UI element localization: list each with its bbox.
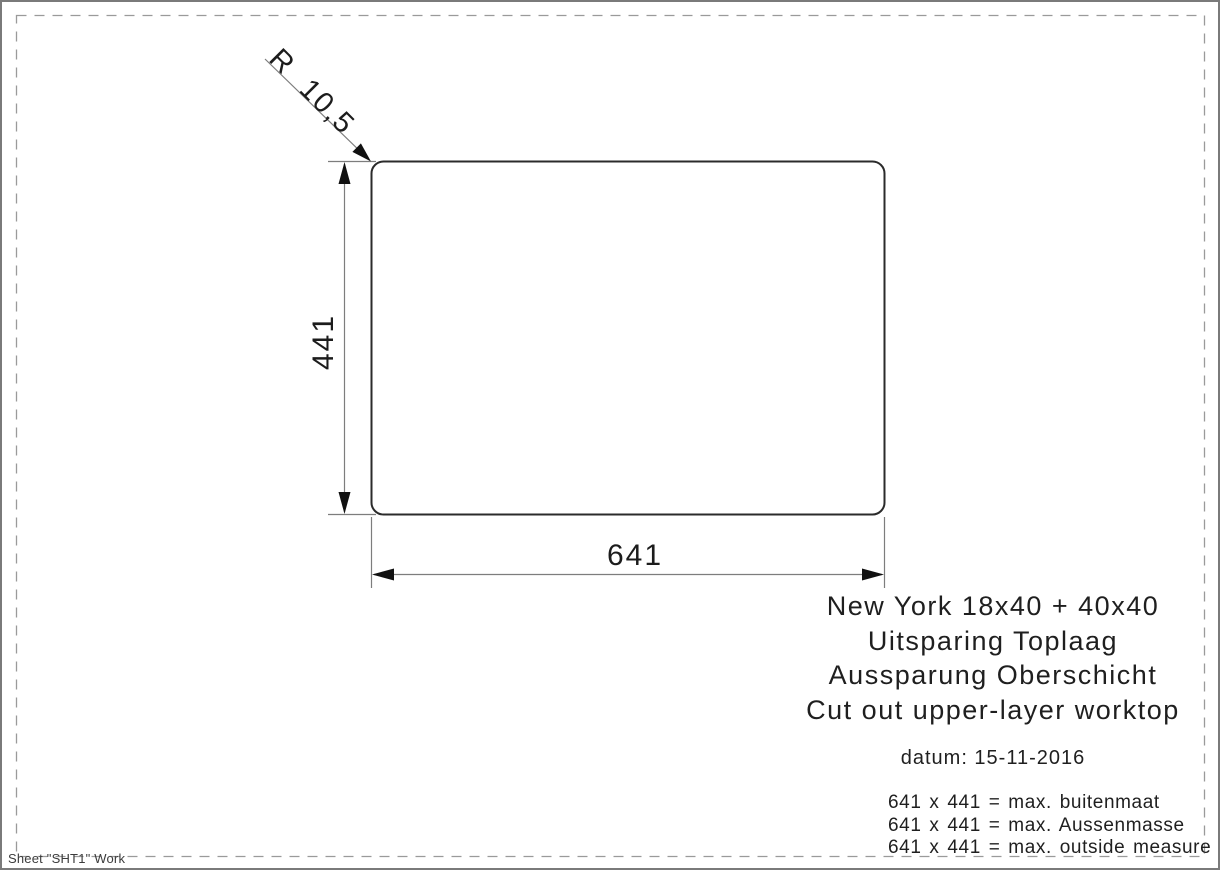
max-measure-nl: 641 x 441 = max. buitenmaat [888,792,1211,815]
height-dimension-value: 441 [309,292,339,392]
height-arrowhead-down-icon [339,492,351,514]
title-line-de: Aussparung Oberschicht [782,658,1204,693]
product-title: New York 18x40 + 40x40 [782,589,1204,624]
max-measure-de: 641 x 441 = max. Aussenmasse [888,815,1211,838]
height-arrowhead-up-icon [339,162,351,184]
width-arrowhead-left-icon [372,569,394,581]
width-dimension-value: 641 [585,541,685,571]
sheet-status-label: Sheet "SHT1" Work [8,852,125,866]
title-block: New York 18x40 + 40x40 Uitsparing Toplaa… [782,589,1204,727]
date-label: datum: 15-11-2016 [782,747,1204,770]
title-line-nl: Uitsparing Toplaag [782,624,1204,659]
sheet-boundary-frame [17,16,1205,857]
width-arrowhead-right-icon [862,569,884,581]
max-measure-block: 641 x 441 = max. buitenmaat 641 x 441 = … [888,792,1211,860]
cutout-technical-drawing [2,2,1220,870]
title-line-en: Cut out upper-layer worktop [782,693,1204,728]
drawing-sheet: 441 641 R 10,5 New York 18x40 + 40x40 Ui… [0,0,1220,870]
cutout-outline [372,162,885,515]
max-measure-en: 641 x 441 = max. outside measure [888,837,1211,860]
